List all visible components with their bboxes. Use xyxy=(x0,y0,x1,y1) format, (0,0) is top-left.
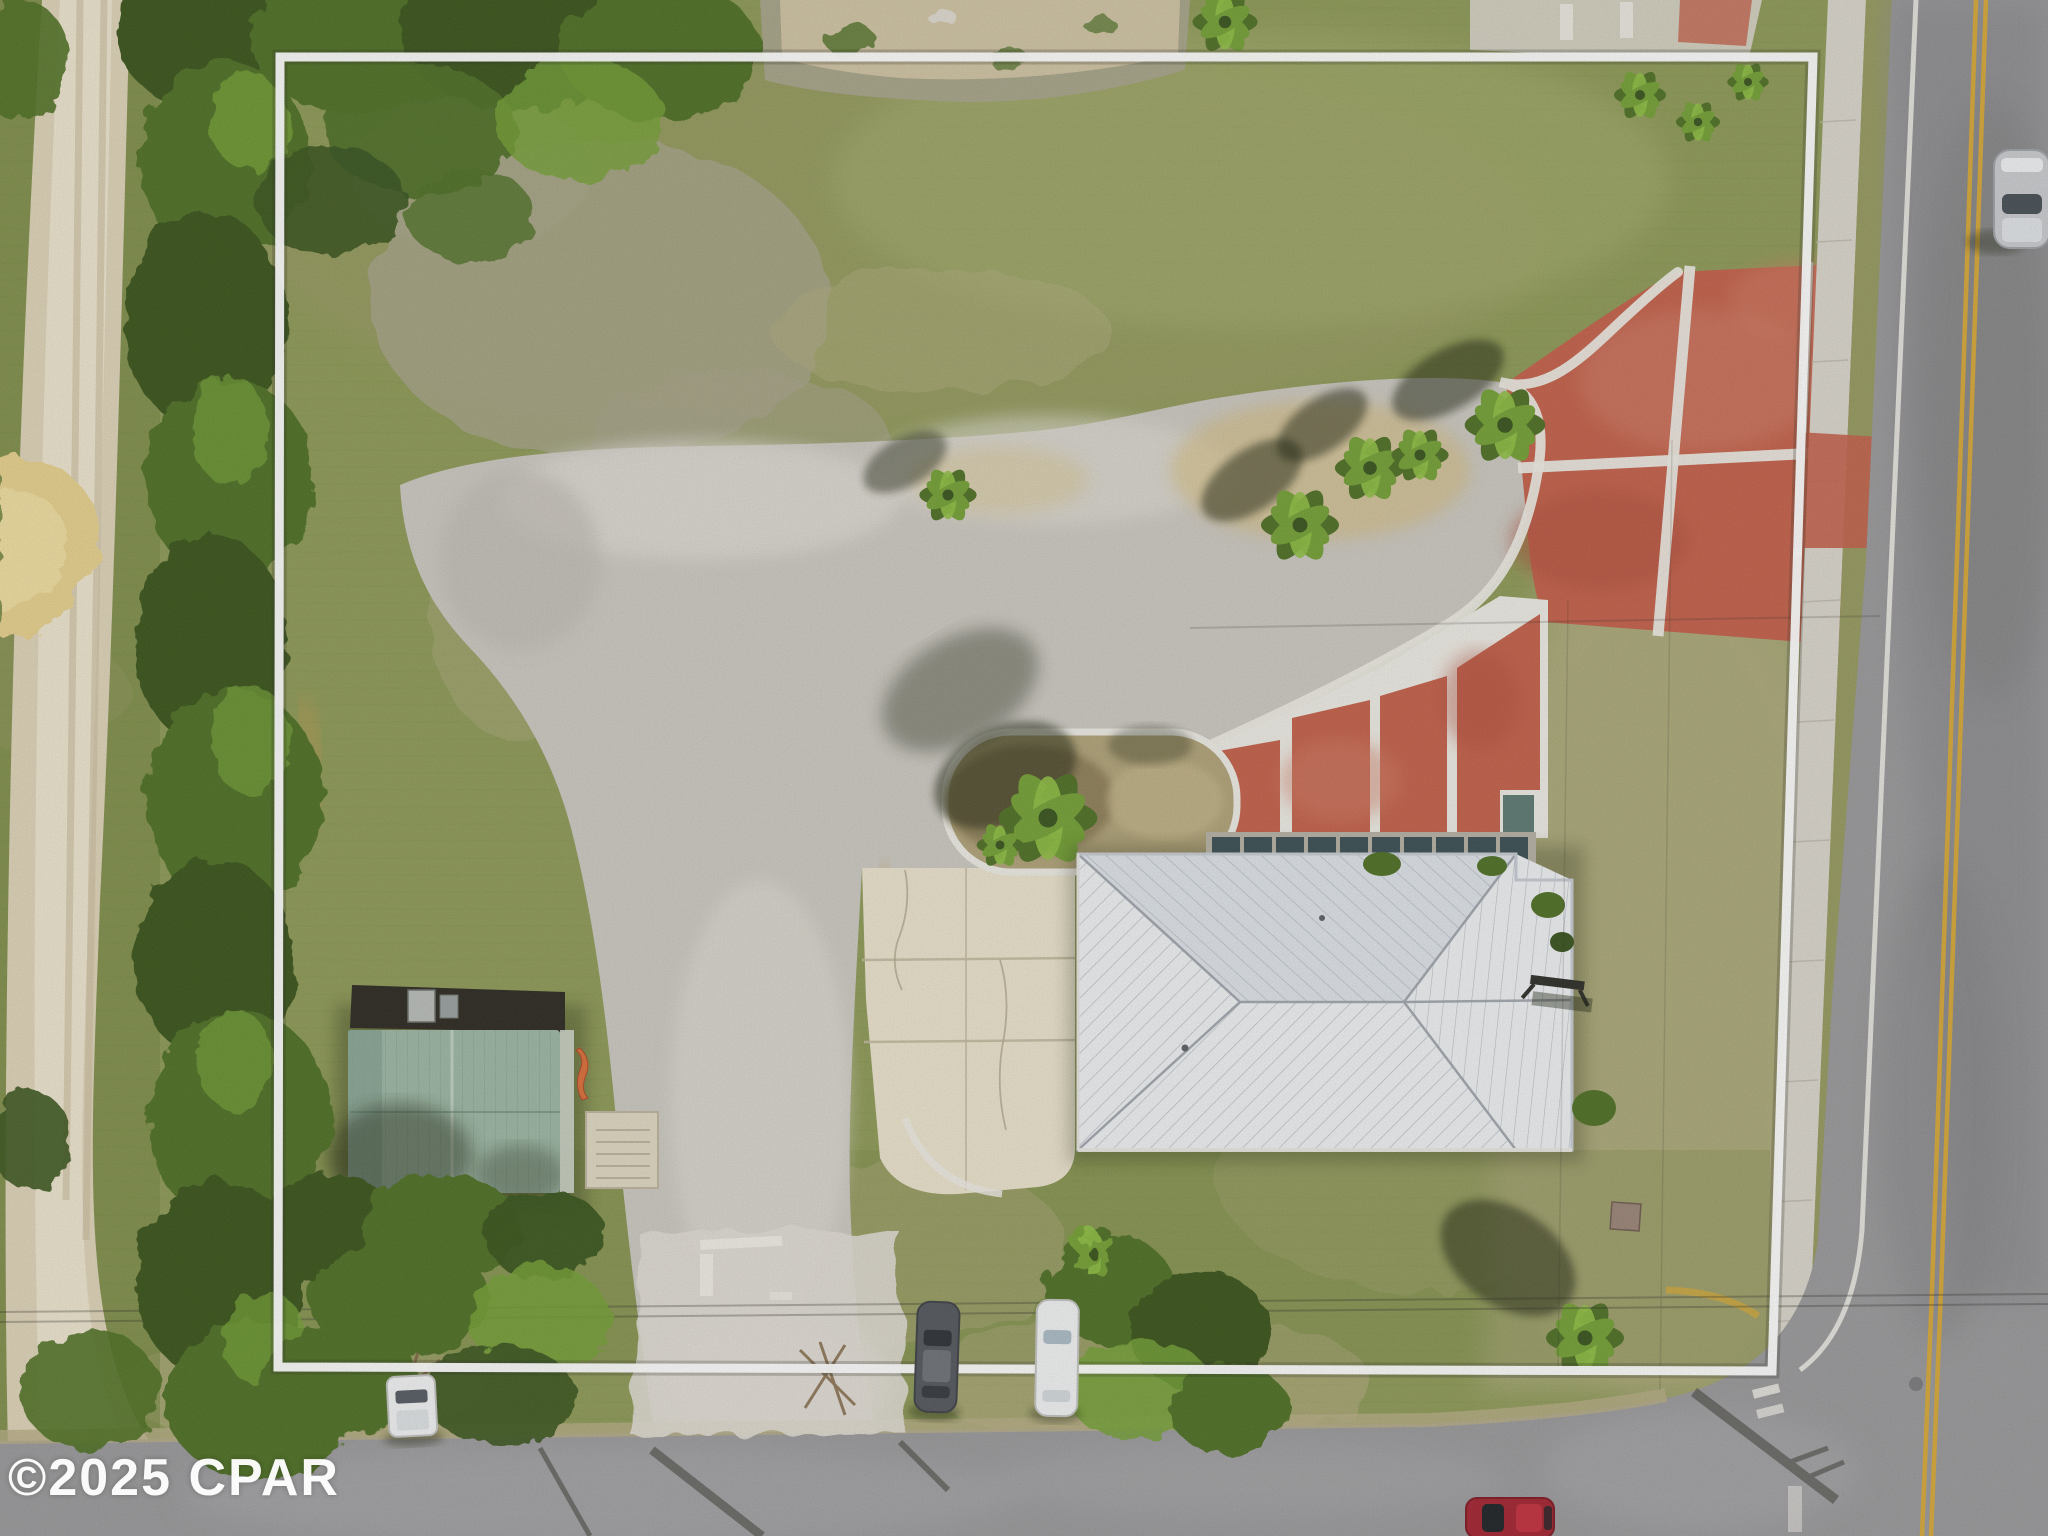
copyright-watermark: ©2025 CPAR xyxy=(8,1448,340,1508)
photo-grain-light xyxy=(0,0,2048,1536)
aerial-photo-scene: ©2025 CPAR xyxy=(0,0,2048,1536)
aerial-photo xyxy=(0,0,2048,1536)
